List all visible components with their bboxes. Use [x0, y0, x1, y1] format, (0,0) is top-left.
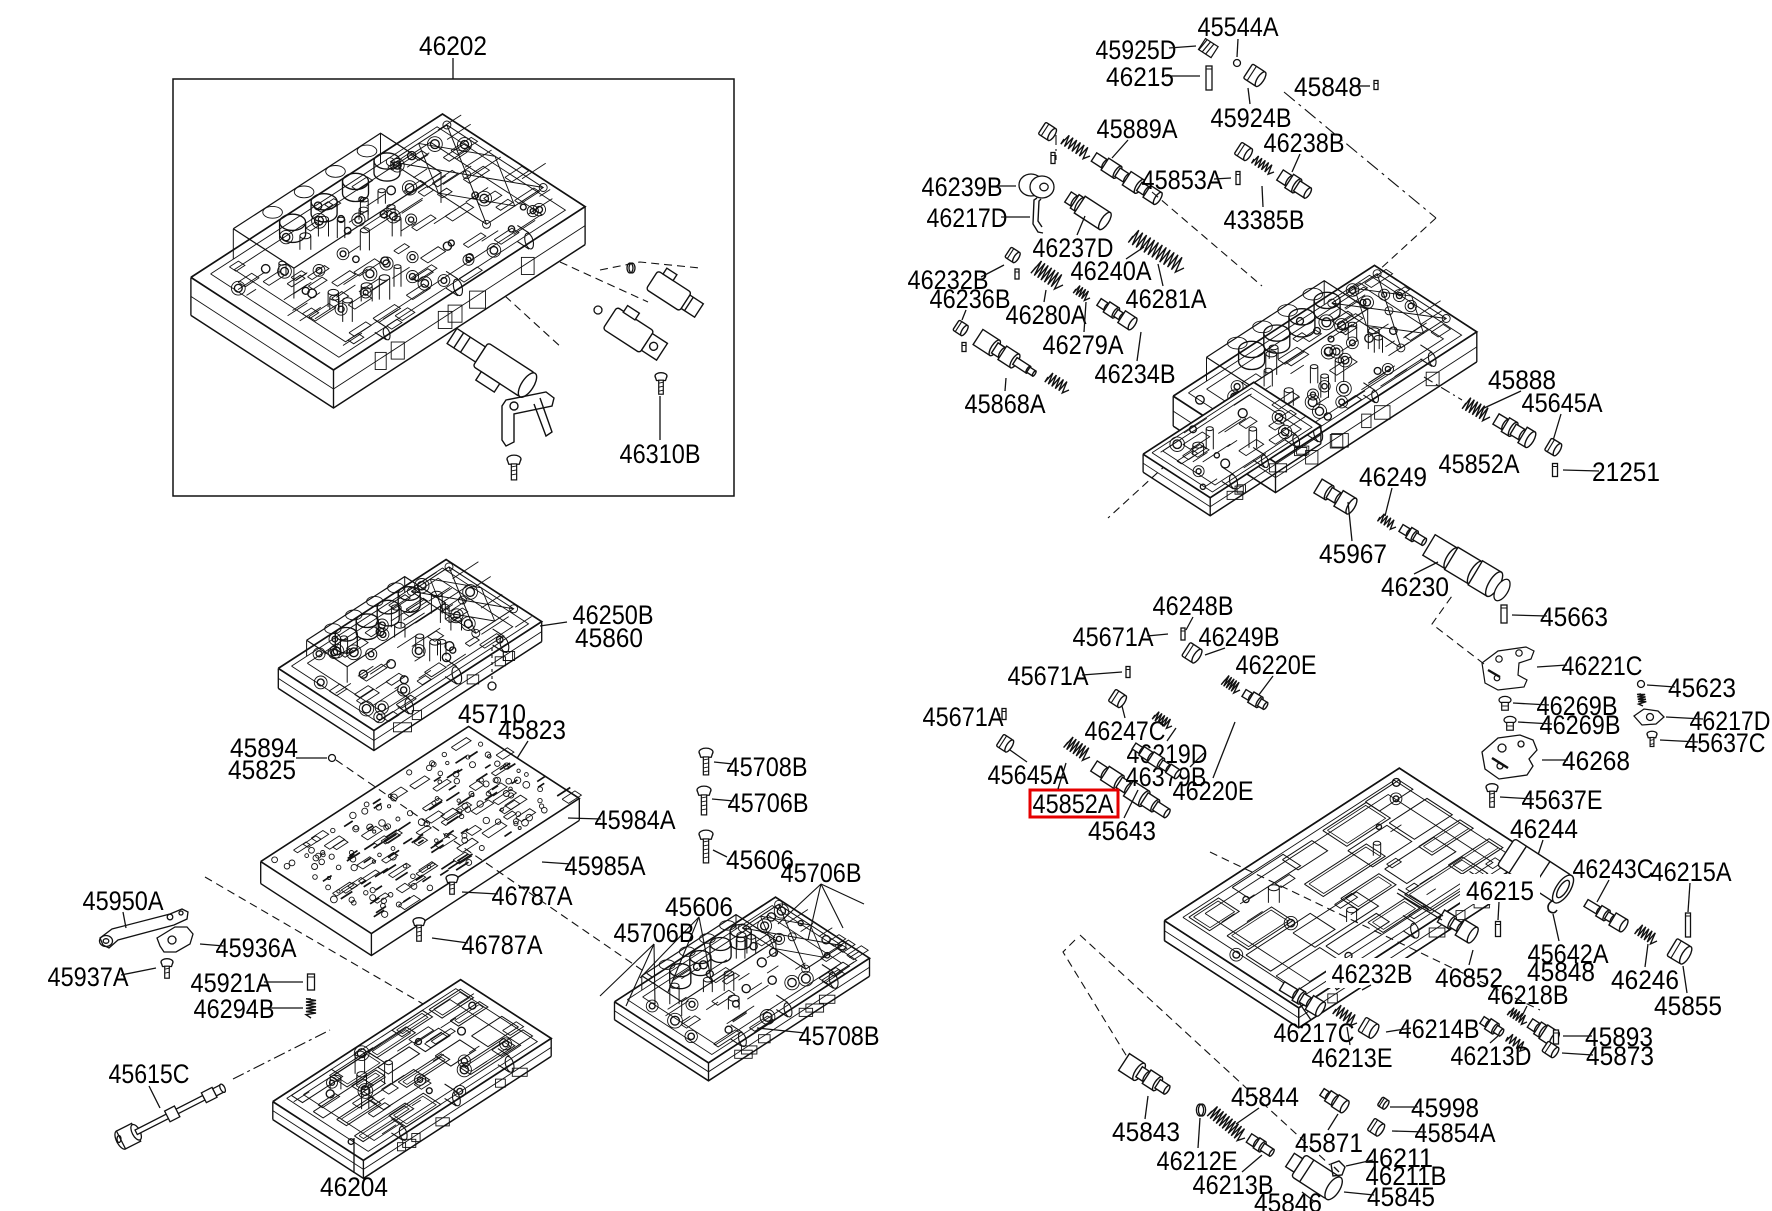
svg-text:45706B: 45706B [781, 858, 862, 888]
svg-text:46243C: 46243C [1573, 854, 1654, 884]
svg-text:45708B: 45708B [727, 752, 808, 782]
svg-text:46230: 46230 [1381, 572, 1449, 602]
svg-text:46220E: 46220E [1236, 650, 1317, 680]
svg-text:46249: 46249 [1359, 462, 1427, 492]
svg-text:46249B: 46249B [1199, 622, 1280, 652]
svg-text:45936A: 45936A [216, 933, 297, 963]
svg-text:46215: 46215 [1466, 876, 1534, 906]
svg-text:46218B: 46218B [1488, 980, 1569, 1010]
svg-text:45873: 45873 [1586, 1041, 1654, 1071]
svg-text:46215: 46215 [1106, 62, 1174, 92]
svg-text:45643: 45643 [1088, 816, 1156, 846]
svg-text:45852A: 45852A [1439, 449, 1520, 479]
svg-text:46294B: 46294B [194, 994, 275, 1024]
svg-text:45950A: 45950A [83, 886, 164, 916]
svg-text:46214B: 46214B [1399, 1014, 1480, 1044]
svg-text:45706B: 45706B [614, 918, 695, 948]
svg-text:45848: 45848 [1294, 72, 1362, 102]
svg-text:46244: 46244 [1510, 814, 1578, 844]
svg-text:45623: 45623 [1668, 673, 1736, 703]
svg-text:45845: 45845 [1367, 1182, 1435, 1211]
svg-text:46269B: 46269B [1540, 710, 1621, 740]
svg-text:45615C: 45615C [109, 1059, 190, 1089]
svg-text:45985A: 45985A [565, 851, 646, 881]
svg-text:46215A: 46215A [1651, 857, 1732, 887]
svg-text:21251: 21251 [1592, 457, 1660, 487]
svg-text:46239B: 46239B [922, 172, 1003, 202]
svg-text:45853A: 45853A [1142, 165, 1223, 195]
svg-text:45708B: 45708B [799, 1021, 880, 1051]
svg-text:46213E: 46213E [1312, 1043, 1393, 1073]
svg-text:46240A: 46240A [1071, 256, 1152, 286]
svg-text:46248B: 46248B [1153, 591, 1234, 621]
svg-text:46220E: 46220E [1173, 776, 1254, 806]
svg-text:45637E: 45637E [1522, 785, 1603, 815]
svg-text:46236B: 46236B [930, 284, 1011, 314]
svg-text:46268: 46268 [1562, 746, 1630, 776]
svg-text:45855: 45855 [1654, 991, 1722, 1021]
svg-text:45967: 45967 [1319, 539, 1387, 569]
svg-text:46217D: 46217D [927, 203, 1008, 233]
svg-text:45843: 45843 [1112, 1117, 1180, 1147]
svg-text:46280A: 46280A [1006, 300, 1087, 330]
svg-text:45663: 45663 [1540, 602, 1608, 632]
svg-text:46310B: 46310B [620, 439, 701, 469]
svg-text:45871: 45871 [1295, 1128, 1363, 1158]
svg-text:45889A: 45889A [1097, 114, 1178, 144]
svg-text:45852A: 45852A [1033, 789, 1114, 819]
svg-text:45671A: 45671A [923, 702, 1004, 732]
svg-text:45823: 45823 [498, 715, 566, 745]
svg-text:46787A: 46787A [462, 930, 543, 960]
svg-text:46279A: 46279A [1043, 330, 1124, 360]
svg-text:45637C: 45637C [1685, 728, 1766, 758]
svg-text:45706B: 45706B [728, 788, 809, 818]
svg-text:45937A: 45937A [48, 962, 129, 992]
svg-text:45544A: 45544A [1198, 12, 1279, 42]
svg-text:45645A: 45645A [1522, 388, 1603, 418]
svg-text:45844: 45844 [1231, 1082, 1299, 1112]
svg-text:46204: 46204 [320, 1172, 388, 1202]
svg-text:45925D: 45925D [1096, 35, 1177, 65]
svg-text:45860: 45860 [575, 623, 643, 653]
svg-text:43385B: 43385B [1224, 205, 1305, 235]
svg-text:46281A: 46281A [1126, 284, 1207, 314]
svg-text:45645A: 45645A [988, 760, 1069, 790]
svg-text:46787A: 46787A [492, 881, 573, 911]
svg-text:46234B: 46234B [1095, 359, 1176, 389]
svg-text:45868A: 45868A [965, 389, 1046, 419]
svg-text:45671A: 45671A [1073, 622, 1154, 652]
svg-text:46213D: 46213D [1451, 1041, 1532, 1071]
svg-text:45825: 45825 [228, 755, 296, 785]
svg-text:46221C: 46221C [1562, 651, 1643, 681]
svg-text:45984A: 45984A [595, 805, 676, 835]
svg-text:46202: 46202 [419, 31, 487, 61]
svg-text:46232B: 46232B [1332, 959, 1413, 989]
svg-text:45671A: 45671A [1008, 661, 1089, 691]
